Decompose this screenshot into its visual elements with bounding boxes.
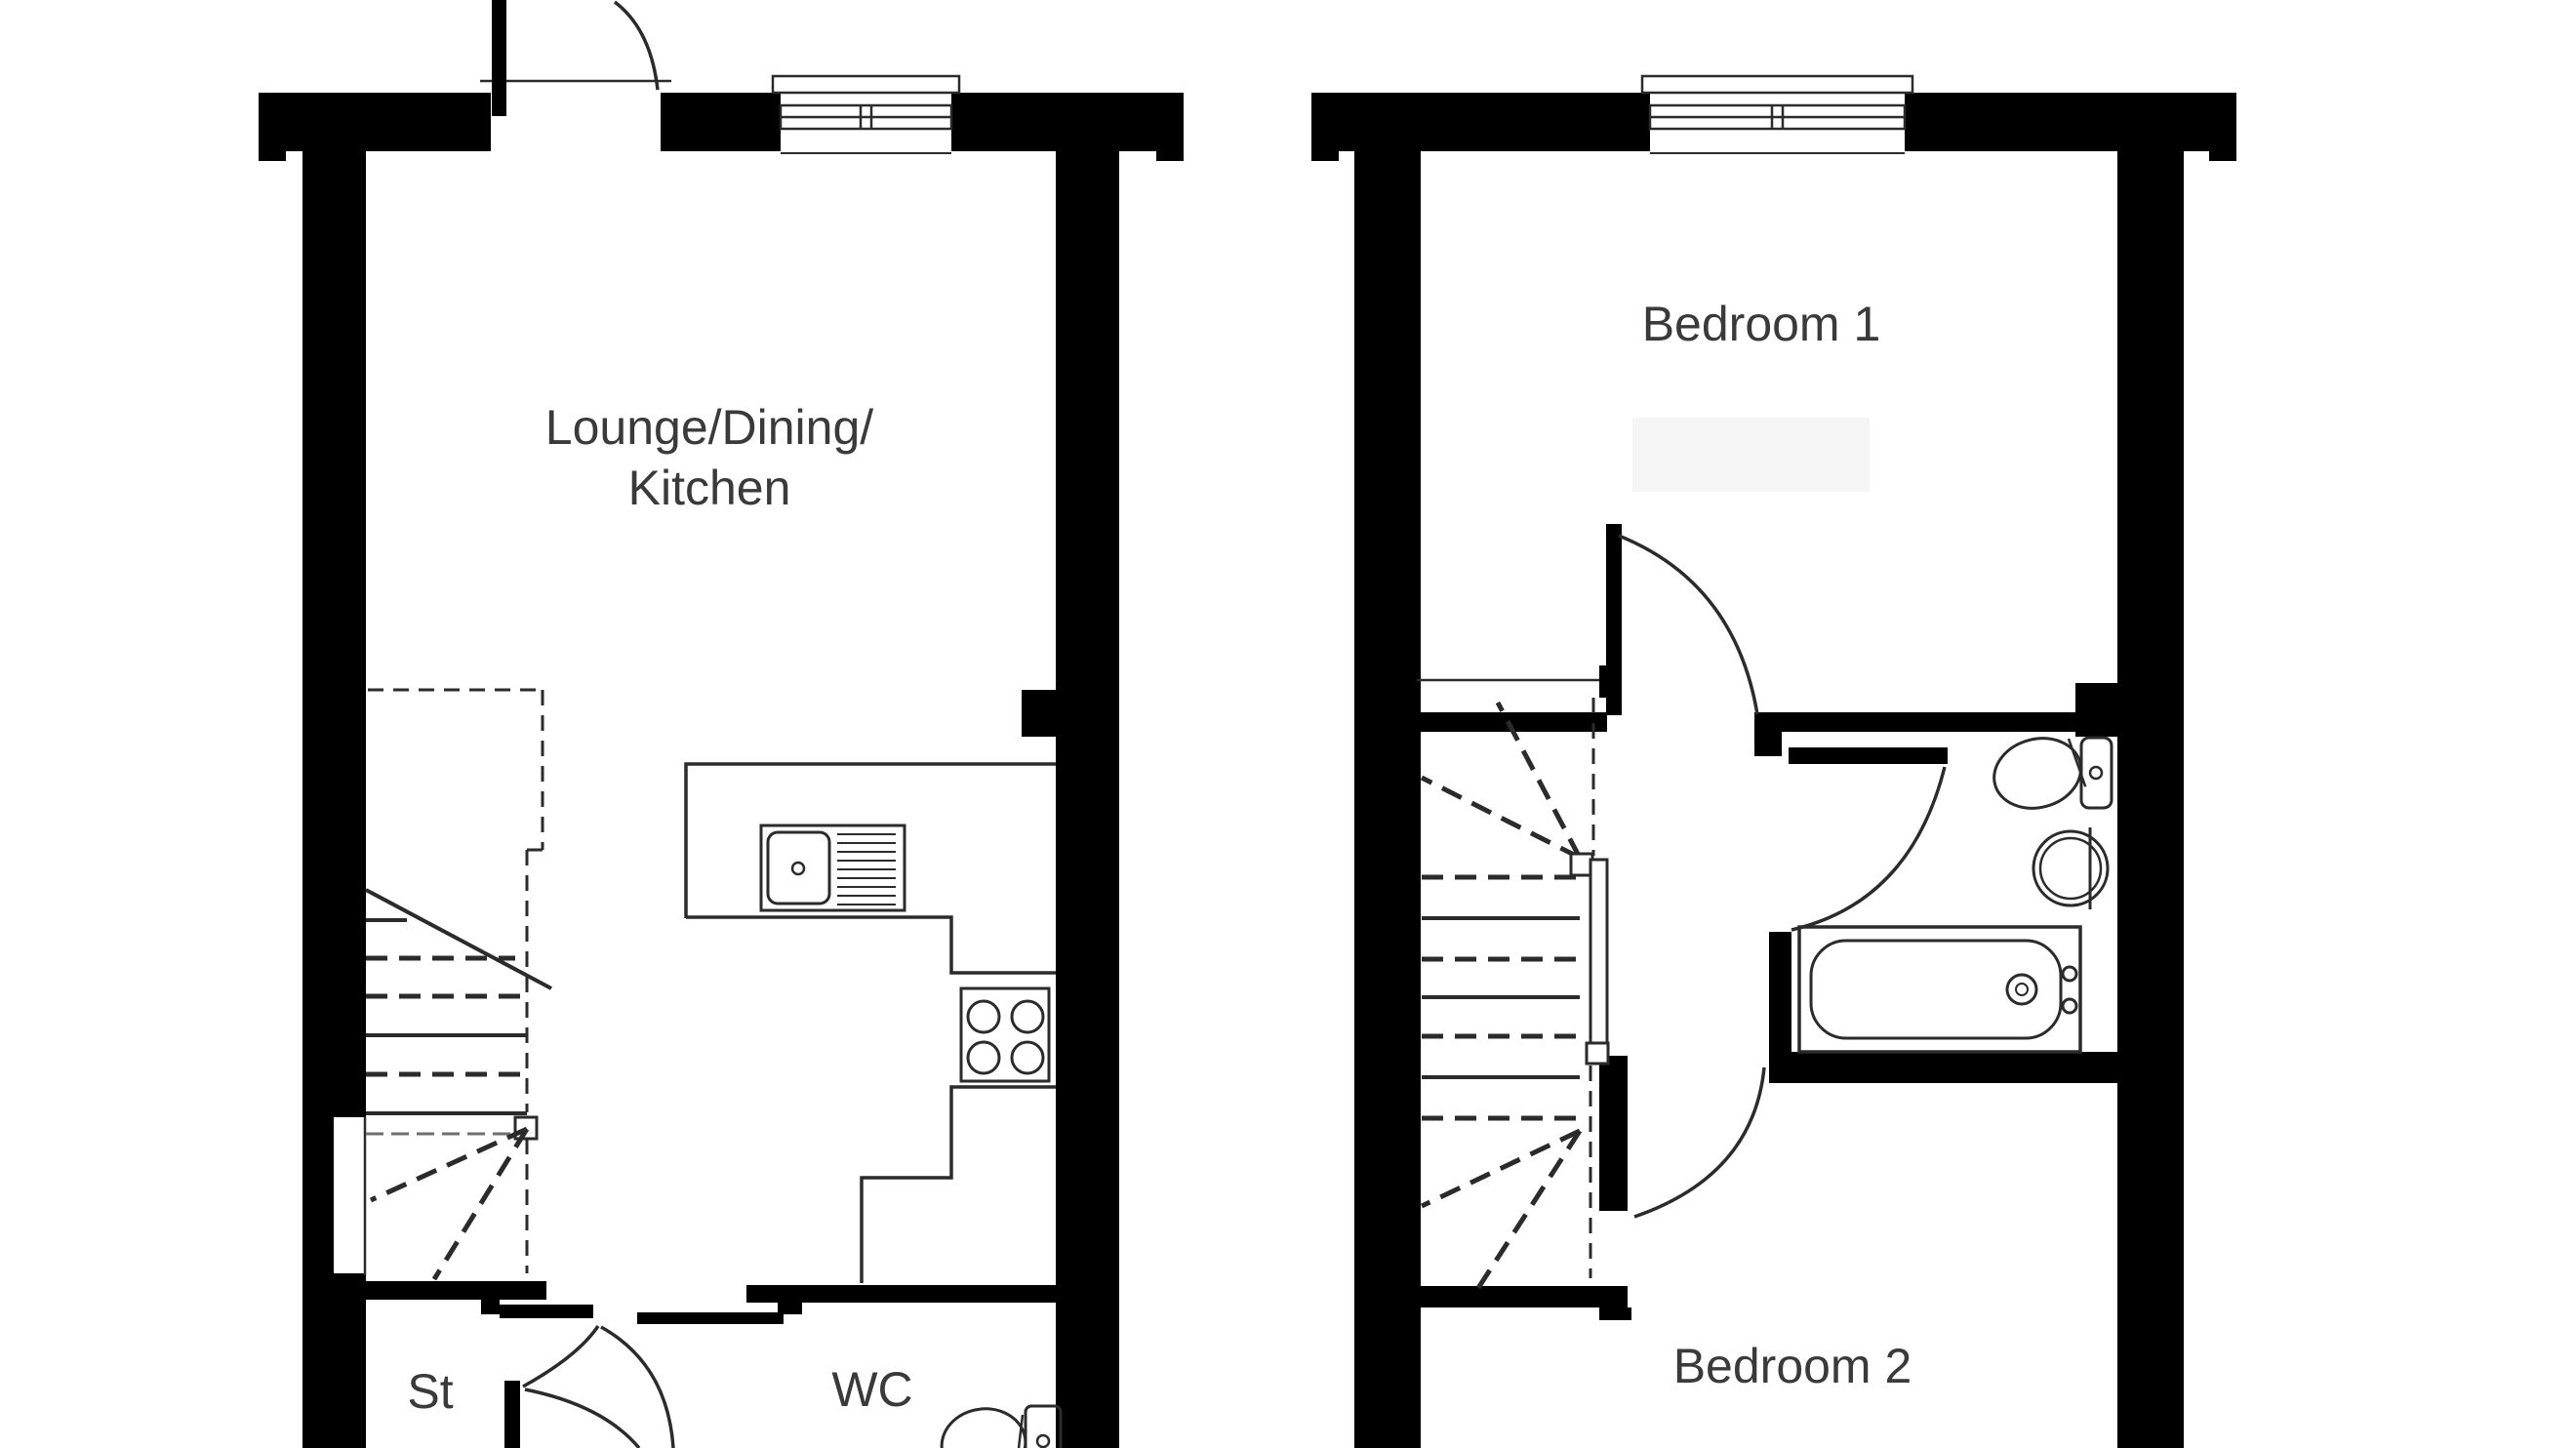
- redacted-dimension-box: [1632, 418, 1870, 492]
- st-door-arc2: [525, 1389, 639, 1448]
- st-door-arc: [523, 1326, 598, 1387]
- wc-door-arc: [601, 1327, 673, 1448]
- ground-floor-walls: [259, 93, 1184, 1448]
- floorplan-drawing: Lounge/Dining/ Kitchen St WC: [0, 0, 2576, 1448]
- sink-drainer: [837, 834, 896, 905]
- lounge-window: [773, 76, 959, 153]
- bedroom1-door: [1606, 524, 1757, 715]
- bath-drain: [2007, 975, 2036, 1004]
- storage-label: St: [407, 1364, 453, 1419]
- wc-label: WC: [831, 1362, 912, 1417]
- handrail: [1590, 860, 1607, 1051]
- bathroom-door: [1789, 747, 1948, 930]
- front-door: [480, 0, 671, 116]
- bedroom2-label: Bedroom 2: [1673, 1339, 1912, 1393]
- basin: [2033, 827, 2108, 909]
- bedroom2-door: [1634, 1067, 1764, 1217]
- sink-tap: [792, 863, 804, 874]
- floorplan-canvas: Lounge/Dining/ Kitchen St WC: [0, 0, 2576, 1448]
- stair-void-dashed-outline: [368, 690, 543, 1273]
- stair-newel-bottom: [1587, 1043, 1608, 1064]
- front-door-arc: [615, 2, 658, 90]
- stair-break-line: [366, 890, 551, 988]
- staircase-ground: [366, 690, 551, 1279]
- bedroom1-label: Bedroom 1: [1642, 297, 1881, 351]
- bath: [1799, 927, 2080, 1052]
- bedroom1-window: [1642, 76, 1912, 153]
- lounge-label-line2: Kitchen: [628, 461, 791, 515]
- bedroom1-door-arc: [1619, 536, 1757, 714]
- hob: [961, 988, 1049, 1081]
- lounge-label-line1: Lounge/Dining/: [545, 400, 873, 455]
- st-door: [500, 1305, 639, 1448]
- hall-door-leaf: [500, 1305, 593, 1318]
- front-door-leaf: [492, 0, 506, 116]
- kitchen-sink: [761, 825, 905, 910]
- bathroom-door-arc: [1791, 767, 1945, 930]
- ground-floor-plan: Lounge/Dining/ Kitchen St WC: [259, 0, 1184, 1448]
- bath-tap: [2063, 967, 2076, 981]
- bath-tap: [2063, 999, 2076, 1013]
- bedroom1-door-leaf: [1606, 524, 1622, 715]
- wc-toilet: [937, 1403, 1061, 1448]
- kitchen-counter: [686, 764, 1056, 1283]
- staircase-first: [1417, 680, 1608, 1288]
- bedroom2-door-arc: [1634, 1067, 1764, 1217]
- bathroom-door-leaf: [1789, 747, 1948, 764]
- wc-door: [601, 1327, 673, 1448]
- first-floor-plan: Bedroom 1 Bedroom 2: [1311, 76, 2236, 1448]
- st-door-leaf: [504, 1381, 520, 1448]
- bathroom-toilet: [1987, 729, 2112, 818]
